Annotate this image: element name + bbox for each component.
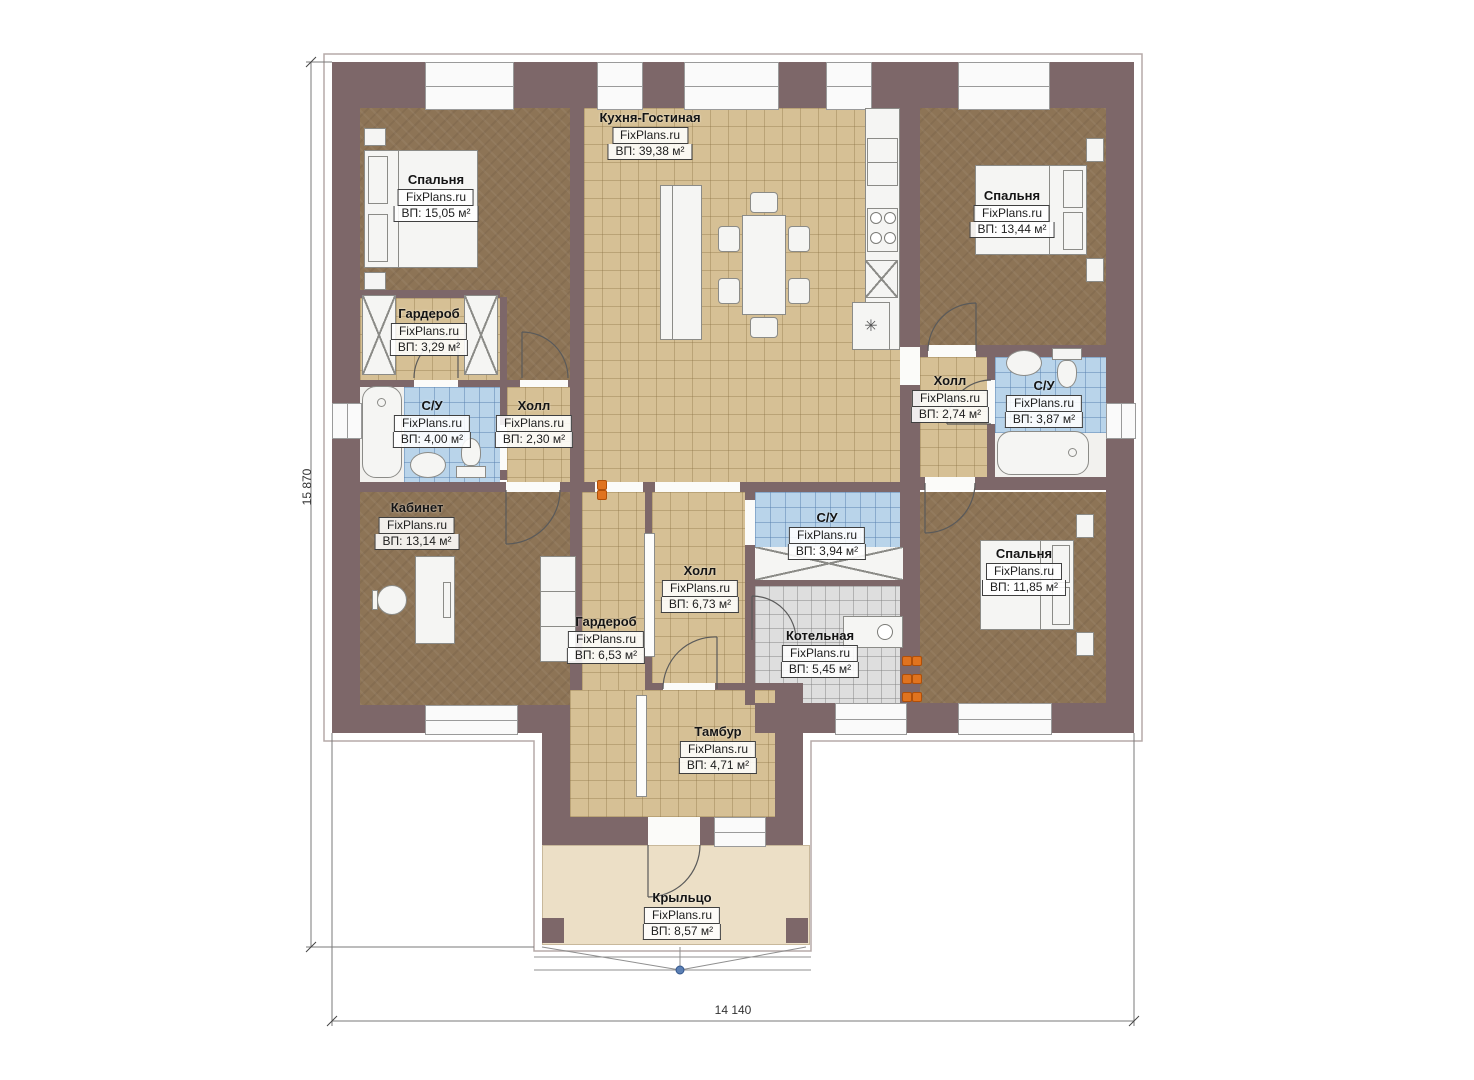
watermark: FixPlans.ru [912,390,988,407]
window-vestibule [714,817,766,847]
room-label-porch: Крыльцо FixPlans.ru ВП: 8,57 м² [643,890,721,940]
dimension-width-label: 14 140 [693,1003,773,1017]
nightstand [364,128,386,146]
room-area: ВП: 39,38 м² [608,144,693,160]
nightstand [1086,138,1104,162]
stove-burner [870,212,882,224]
boiler-sink [877,624,893,640]
watermark: FixPlans.ru [986,563,1062,580]
room-label-hall-left: Холл FixPlans.ru ВП: 2,30 м² [495,398,573,448]
room-area: ВП: 4,71 м² [679,758,757,774]
pillow [1063,170,1083,208]
watermark: FixPlans.ru [680,741,756,758]
wardrobe-cabinet [464,295,498,375]
room-label-vestibule: Тамбур FixPlans.ru ВП: 4,71 м² [679,724,757,774]
watermark: FixPlans.ru [644,907,720,924]
room-label-wardrobe-top: Гардероб FixPlans.ru ВП: 3,29 м² [390,306,468,356]
door-gap-bedroom-tl [520,380,568,387]
door-gap-wardrobe-top [414,380,458,387]
nightstand [364,272,386,290]
room-area: ВП: 5,45 м² [781,662,859,678]
dining-table [742,215,786,315]
room-area: ВП: 6,73 м² [661,597,739,613]
wall-porch-block-right [786,918,808,943]
room-label-bedroom-top-right: Спальня FixPlans.ru ВП: 13,44 м² [970,188,1055,238]
room-label-bathroom-center: С/У FixPlans.ru ВП: 3,94 м² [788,510,866,560]
watermark: FixPlans.ru [789,527,865,544]
room-area: ВП: 13,44 м² [970,222,1055,238]
watermark: FixPlans.ru [1006,395,1082,412]
room-label-bedroom-bottom-right: Спальня FixPlans.ru ВП: 11,85 м² [982,546,1066,596]
radiator-marker [912,692,922,702]
watermark: FixPlans.ru [662,580,738,597]
pocket-door-vestibule [636,695,647,797]
toilet-tank [1052,348,1082,360]
room-name: Гардероб [575,614,636,629]
stove-burner [870,232,882,244]
watermark: FixPlans.ru [612,127,688,144]
radiator-marker [902,674,912,684]
room-name: Спальня [996,546,1052,561]
room-name: Крыльцо [652,890,711,905]
toilet-tank [456,466,486,478]
wall-porch-block-left [542,918,564,943]
radiator-marker [902,656,912,666]
chair [718,278,740,304]
watermark: FixPlans.ru [974,205,1050,222]
office-chair-back [372,590,378,610]
wall-vestibule-right [775,683,803,845]
dimension-height-label: 15 870 [300,455,314,519]
chair [718,226,740,252]
kitchen-sink-box: ✳ [852,302,890,350]
sink-right [1006,350,1042,376]
tick [306,942,316,952]
room-area: ВП: 2,74 м² [911,407,989,423]
tick [1129,1016,1139,1026]
room-area: ВП: 6,53 м² [567,648,645,664]
room-area: ВП: 2,30 м² [495,432,573,448]
window-top-2 [597,62,643,110]
room-name: Спальня [984,188,1040,203]
radiator-marker [597,480,607,490]
door-gap-bedroom-tr [928,345,976,357]
window-top-5 [958,62,1050,110]
room-name: Холл [518,398,551,413]
sofa-living [660,185,702,340]
room-area: ВП: 13,14 м² [375,534,460,550]
floor-plan-canvas: ✳ [0,0,1474,1080]
room-label-wardrobe-bottom: Гардероб FixPlans.ru ВП: 6,53 м² [567,614,645,664]
radiator-marker [902,692,912,702]
room-label-office: Кабинет FixPlans.ru ВП: 13,14 м² [375,500,460,550]
watermark: FixPlans.ru [496,415,572,432]
radiator-marker [912,656,922,666]
sofa-cushion-line [541,591,575,592]
radiator-marker [597,490,607,500]
nightstand [1076,514,1094,538]
room-name: Кухня-Гостиная [599,110,700,125]
radiator-marker [912,674,922,684]
window-top-3 [684,62,779,110]
porch-steps [534,947,811,974]
window-top-4 [826,62,872,110]
room-name: С/У [1033,378,1054,393]
room-name: Холл [934,373,967,388]
window-top-1 [425,62,514,110]
sofa-back-line [672,186,673,339]
watermark: FixPlans.ru [398,189,474,206]
window-bottom-office [425,705,518,735]
room-name: Спальня [408,172,464,187]
room-area: ВП: 11,85 м² [982,580,1066,596]
room-label-bathroom-right: С/У FixPlans.ru ВП: 3,87 м² [1005,378,1083,428]
stove-burner [884,212,896,224]
door-gap-vestibule [663,683,715,690]
kitchen-sink-symbol: ✳ [864,316,877,336]
office-chair [377,585,407,615]
watermark: FixPlans.ru [379,517,455,534]
drain [1068,448,1077,457]
room-name: С/У [816,510,837,525]
drain [377,398,386,407]
chair [788,278,810,304]
fridge-line [868,162,897,163]
room-label-bedroom-top-left: Спальня FixPlans.ru ВП: 15,05 м² [394,172,479,222]
chair [750,192,778,213]
room-label-hall-center: Холл FixPlans.ru ВП: 6,73 м² [661,563,739,613]
room-label-boiler-room: Котельная FixPlans.ru ВП: 5,45 м² [781,628,859,678]
wall-bottom-right [755,703,1106,733]
room-name: Котельная [786,628,854,643]
watermark: FixPlans.ru [394,415,470,432]
door-gap-bath-center [745,500,755,545]
door-gap-bedroom-br [925,477,975,490]
room-area: ВП: 15,05 м² [394,206,479,222]
room-area: ВП: 3,94 м² [788,544,866,560]
tick [327,1016,337,1026]
room-label-hall-right: Холл FixPlans.ru ВП: 2,74 м² [911,373,989,423]
room-name: Тамбур [694,724,741,739]
wall-vestibule-left [542,705,570,845]
window-bottom-bedroom-br-2 [958,703,1052,735]
room-label-kitchen-living: Кухня-Гостиная FixPlans.ru ВП: 39,38 м² [599,110,700,160]
room-name: Кабинет [391,500,444,515]
window-left [332,403,362,439]
floor-bedroom-top-left-leg [500,290,570,382]
pillow [1063,212,1083,250]
window-right [1106,403,1136,439]
door-gap-porch [648,817,700,845]
office-monitor [443,582,451,618]
tick [306,57,316,67]
pocket-door-strip [644,533,655,657]
kitchen-cabinet [865,260,898,298]
room-area: ВП: 3,29 м² [390,340,468,356]
room-label-bathroom-left: С/У FixPlans.ru ВП: 4,00 м² [393,398,471,448]
room-name: Холл [684,563,717,578]
nightstand [1086,258,1104,282]
chair [788,226,810,252]
room-name: С/У [421,398,442,413]
sink-left [410,452,446,478]
window-bottom-bedroom-br-1 [835,703,907,735]
wall-bathc-boiler [755,580,903,586]
room-name: Гардероб [398,306,459,321]
nightstand [1076,632,1094,656]
door-gap-office [506,482,560,492]
pillow [368,156,388,204]
watermark: FixPlans.ru [782,645,858,662]
watermark: FixPlans.ru [568,631,644,648]
room-area: ВП: 4,00 м² [393,432,471,448]
room-area: ВП: 8,57 м² [643,924,721,940]
door-gap-kitchen-hallc [655,482,740,492]
room-area: ВП: 3,87 м² [1005,412,1083,428]
pillow [368,214,388,262]
stove-burner [884,232,896,244]
watermark: FixPlans.ru [391,323,467,340]
chair [750,317,778,338]
